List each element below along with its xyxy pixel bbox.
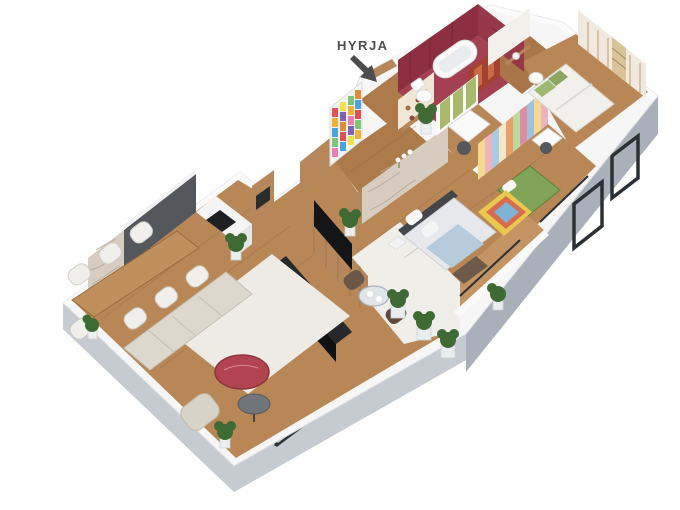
coffee-table-top: [215, 355, 269, 389]
stripe: [492, 127, 499, 169]
book: [340, 112, 346, 121]
book: [348, 116, 354, 125]
book: [348, 106, 354, 115]
book: [348, 126, 354, 135]
stripe: [478, 138, 485, 180]
plant-foliage: [415, 103, 425, 113]
book: [332, 128, 338, 137]
book: [340, 132, 346, 141]
planter-foliage: [425, 311, 435, 321]
bistro-plate: [376, 296, 382, 302]
book: [355, 100, 361, 109]
planter-foliage: [387, 289, 397, 299]
book: [355, 120, 361, 129]
plant-foliage: [427, 104, 437, 114]
stripe: [499, 122, 506, 163]
stripe: [513, 110, 520, 152]
floral-dab: [410, 116, 415, 121]
stripe: [527, 99, 534, 141]
planter-foliage: [399, 289, 409, 299]
plant-foliage: [83, 315, 92, 324]
stripe: [506, 116, 513, 158]
book: [332, 108, 338, 117]
book: [332, 118, 338, 127]
entrance-label: HYRJA: [337, 38, 389, 53]
book: [348, 136, 354, 145]
flower: [408, 150, 413, 155]
book: [332, 138, 338, 147]
floorplan-render: HYRJA: [0, 0, 680, 510]
coffee-table: [215, 355, 269, 389]
desk-chair: [457, 141, 471, 155]
flower: [402, 154, 407, 159]
plant-foliage: [339, 208, 349, 218]
plant-foliage: [237, 233, 247, 243]
book: [348, 96, 354, 105]
floorplan-canvas: HYRJA: [0, 0, 680, 510]
planter-foliage: [437, 329, 447, 339]
flower: [396, 158, 401, 163]
desk-chair: [540, 142, 552, 154]
book: [355, 110, 361, 119]
book: [340, 102, 346, 111]
stripe: [520, 105, 527, 146]
plant-foliage: [487, 283, 497, 293]
planter-foliage: [449, 329, 459, 339]
bistro-plate: [367, 291, 373, 297]
bistro-table: [359, 286, 389, 306]
side-table-top: [238, 394, 270, 414]
entrance-arrow: [350, 55, 377, 82]
book: [355, 130, 361, 139]
plant-foliage: [225, 233, 235, 243]
plant-foliage: [351, 209, 361, 219]
floral-dab: [406, 106, 411, 111]
book: [340, 142, 346, 151]
plant-pot: [421, 124, 431, 134]
plant-foliage: [226, 421, 236, 431]
book: [332, 148, 338, 157]
planter-foliage: [413, 311, 423, 321]
stripe: [485, 133, 492, 174]
wc-sink: [513, 53, 520, 60]
wc-toilet: [529, 73, 543, 84]
toilet-bowl: [416, 90, 432, 102]
book: [355, 90, 361, 99]
book: [340, 122, 346, 131]
plant-foliage: [214, 421, 224, 431]
